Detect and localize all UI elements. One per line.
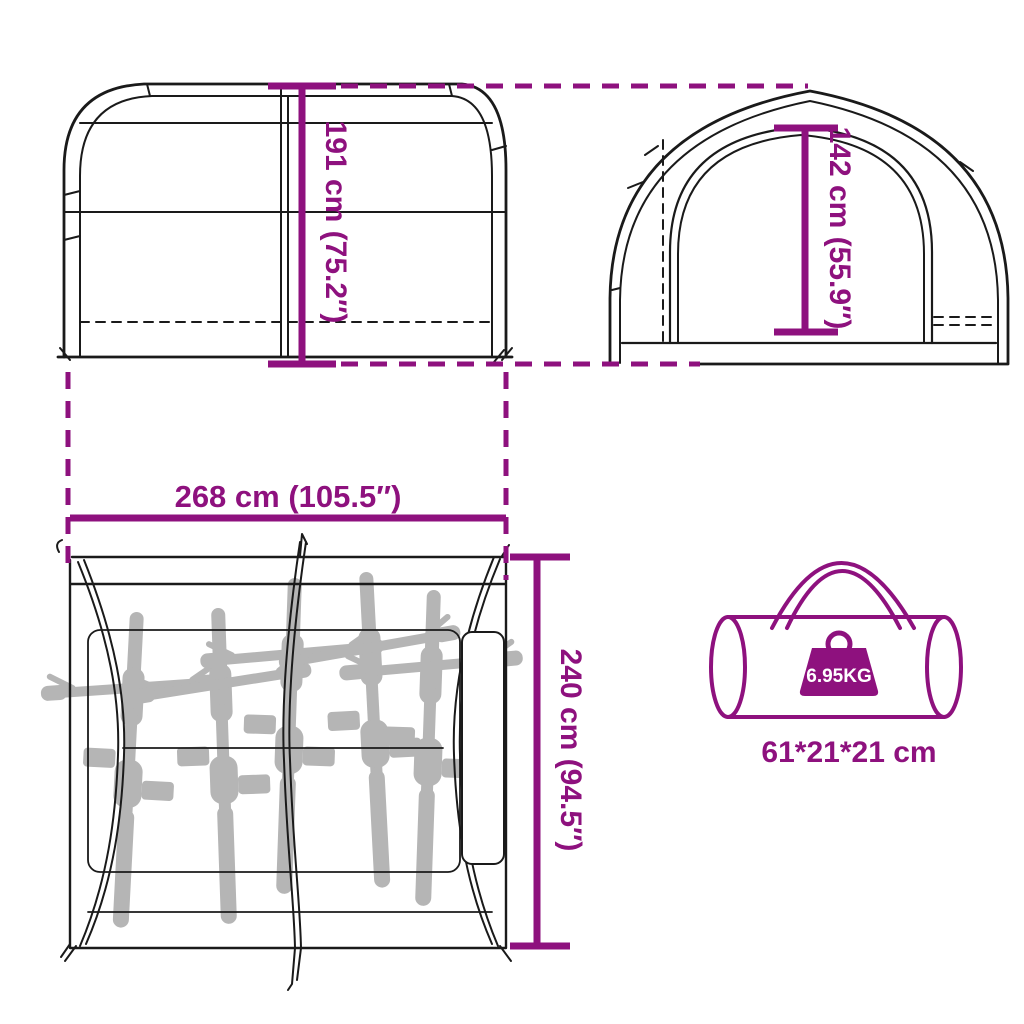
front-view-pole-sleeve-ticks — [612, 146, 973, 290]
bag-weight-label: 6.95KG — [806, 666, 871, 687]
dimension-width-268: 268 cm (105.5″) — [70, 479, 506, 518]
width-label: 268 cm (105.5″) — [175, 479, 402, 514]
top-view-door-panel — [462, 632, 504, 864]
bag-right-end — [927, 617, 961, 717]
side-view-outer-wall — [64, 84, 506, 357]
tent-side-view — [58, 84, 512, 362]
side-view-feet-marks — [60, 348, 512, 362]
front-view-vent-dashes — [934, 317, 992, 325]
tent-front-view — [610, 91, 1008, 364]
door-height-label: 142 cm (55.9″) — [823, 127, 856, 330]
dimension-diagram: 191 cm (75.2″) 142 cm (55.9″) 268 cm (10… — [0, 0, 1024, 1024]
tent-top-view — [27, 534, 526, 990]
weight-icon: 6.95KG — [800, 633, 878, 696]
bike-top-silhouette — [27, 607, 229, 932]
dimension-depth-240: 240 cm (94.5″) — [510, 557, 587, 946]
side-view-inner-wall — [80, 96, 492, 357]
bag-left-end — [711, 617, 745, 717]
front-view-inner-arch — [620, 101, 998, 363]
bag-size-label: 61*21*21 cm — [761, 736, 936, 769]
bike-top-silhouette — [272, 567, 474, 892]
side-view-pole-sleeve-ticks — [64, 84, 506, 240]
depth-label: 240 cm (94.5″) — [554, 649, 587, 852]
dimension-door-height-142: 142 cm (55.9″) — [774, 127, 856, 332]
front-view-door-arch-inner — [678, 135, 924, 343]
carry-bag: 6.95KG 61*21*21 cm — [711, 563, 961, 769]
side-view-center-seam — [281, 84, 288, 357]
diagram-canvas: 191 cm (75.2″) 142 cm (55.9″) 268 cm (10… — [0, 0, 1024, 1024]
side-height-label: 191 cm (75.2″) — [319, 121, 352, 324]
front-view-door-arch-outer — [670, 127, 932, 343]
